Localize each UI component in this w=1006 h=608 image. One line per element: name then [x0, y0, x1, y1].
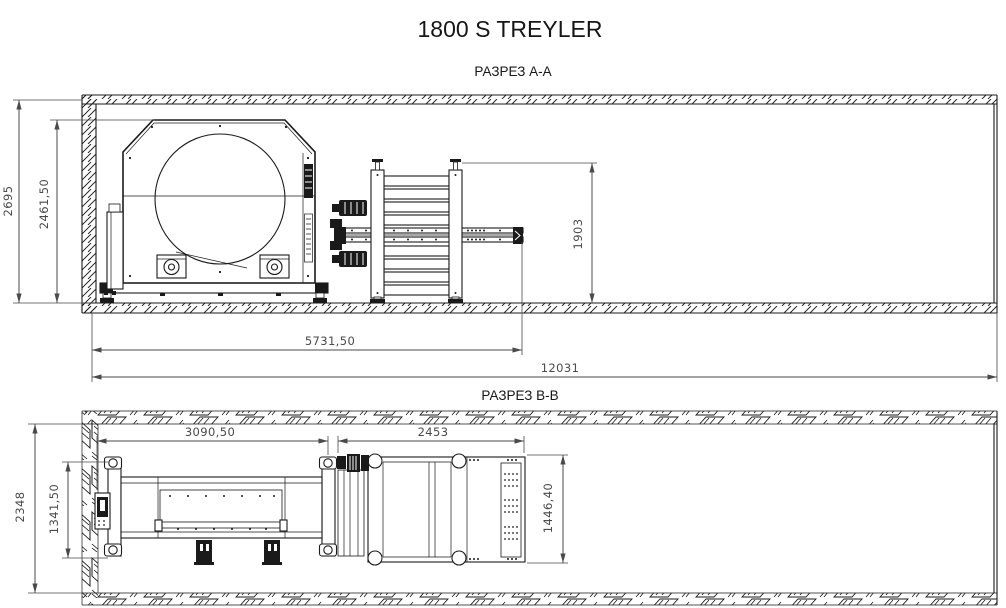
winder-machine	[100, 120, 328, 303]
bearing-mount-left	[157, 255, 186, 278]
section-bb-label: РАЗРЕЗ B-B	[481, 388, 558, 403]
dim-machine-width: 1341,50	[47, 484, 61, 534]
conveyor-unit	[337, 454, 525, 565]
page-title: 1800 S TREYLER	[418, 16, 603, 42]
view-bb: 2348 1341,50 3090,50 2453 1446,40	[13, 411, 997, 605]
dim-machine-height: 2461,50	[37, 179, 51, 229]
machine-foot-left	[194, 540, 214, 565]
dim-conveyor-width: 1446,40	[541, 483, 555, 533]
machine-foot-right	[262, 540, 282, 565]
section-aa-label: РАЗРЕЗ A-A	[474, 64, 551, 79]
dim-machine-length-bb: 3090,50	[185, 425, 235, 439]
control-box	[95, 493, 110, 529]
drawing-canvas: 1800 S TREYLER РАЗРЕЗ A-A	[0, 0, 1006, 608]
bearing-mount-right	[260, 255, 289, 278]
dim-total-length: 12031	[541, 361, 580, 375]
conveyor-motor	[337, 454, 369, 472]
dim-overall-height-aa: 2695	[1, 186, 15, 217]
dim-machine-length: 5731,50	[305, 334, 355, 348]
view-aa: 2695 2461,50 1903 5731,50 12031	[1, 95, 997, 382]
engineering-drawing: 1800 S TREYLER РАЗРЕЗ A-A	[0, 0, 1006, 608]
carriage-machine	[95, 457, 337, 565]
trailer-walls-aa	[82, 95, 997, 313]
brand-strip	[303, 153, 313, 283]
guide-beam	[334, 227, 523, 244]
dim-overall-height-bb: 2348	[13, 492, 27, 523]
dim-conveyor-length: 2453	[418, 425, 449, 439]
dim-stand-height: 1903	[571, 219, 585, 250]
